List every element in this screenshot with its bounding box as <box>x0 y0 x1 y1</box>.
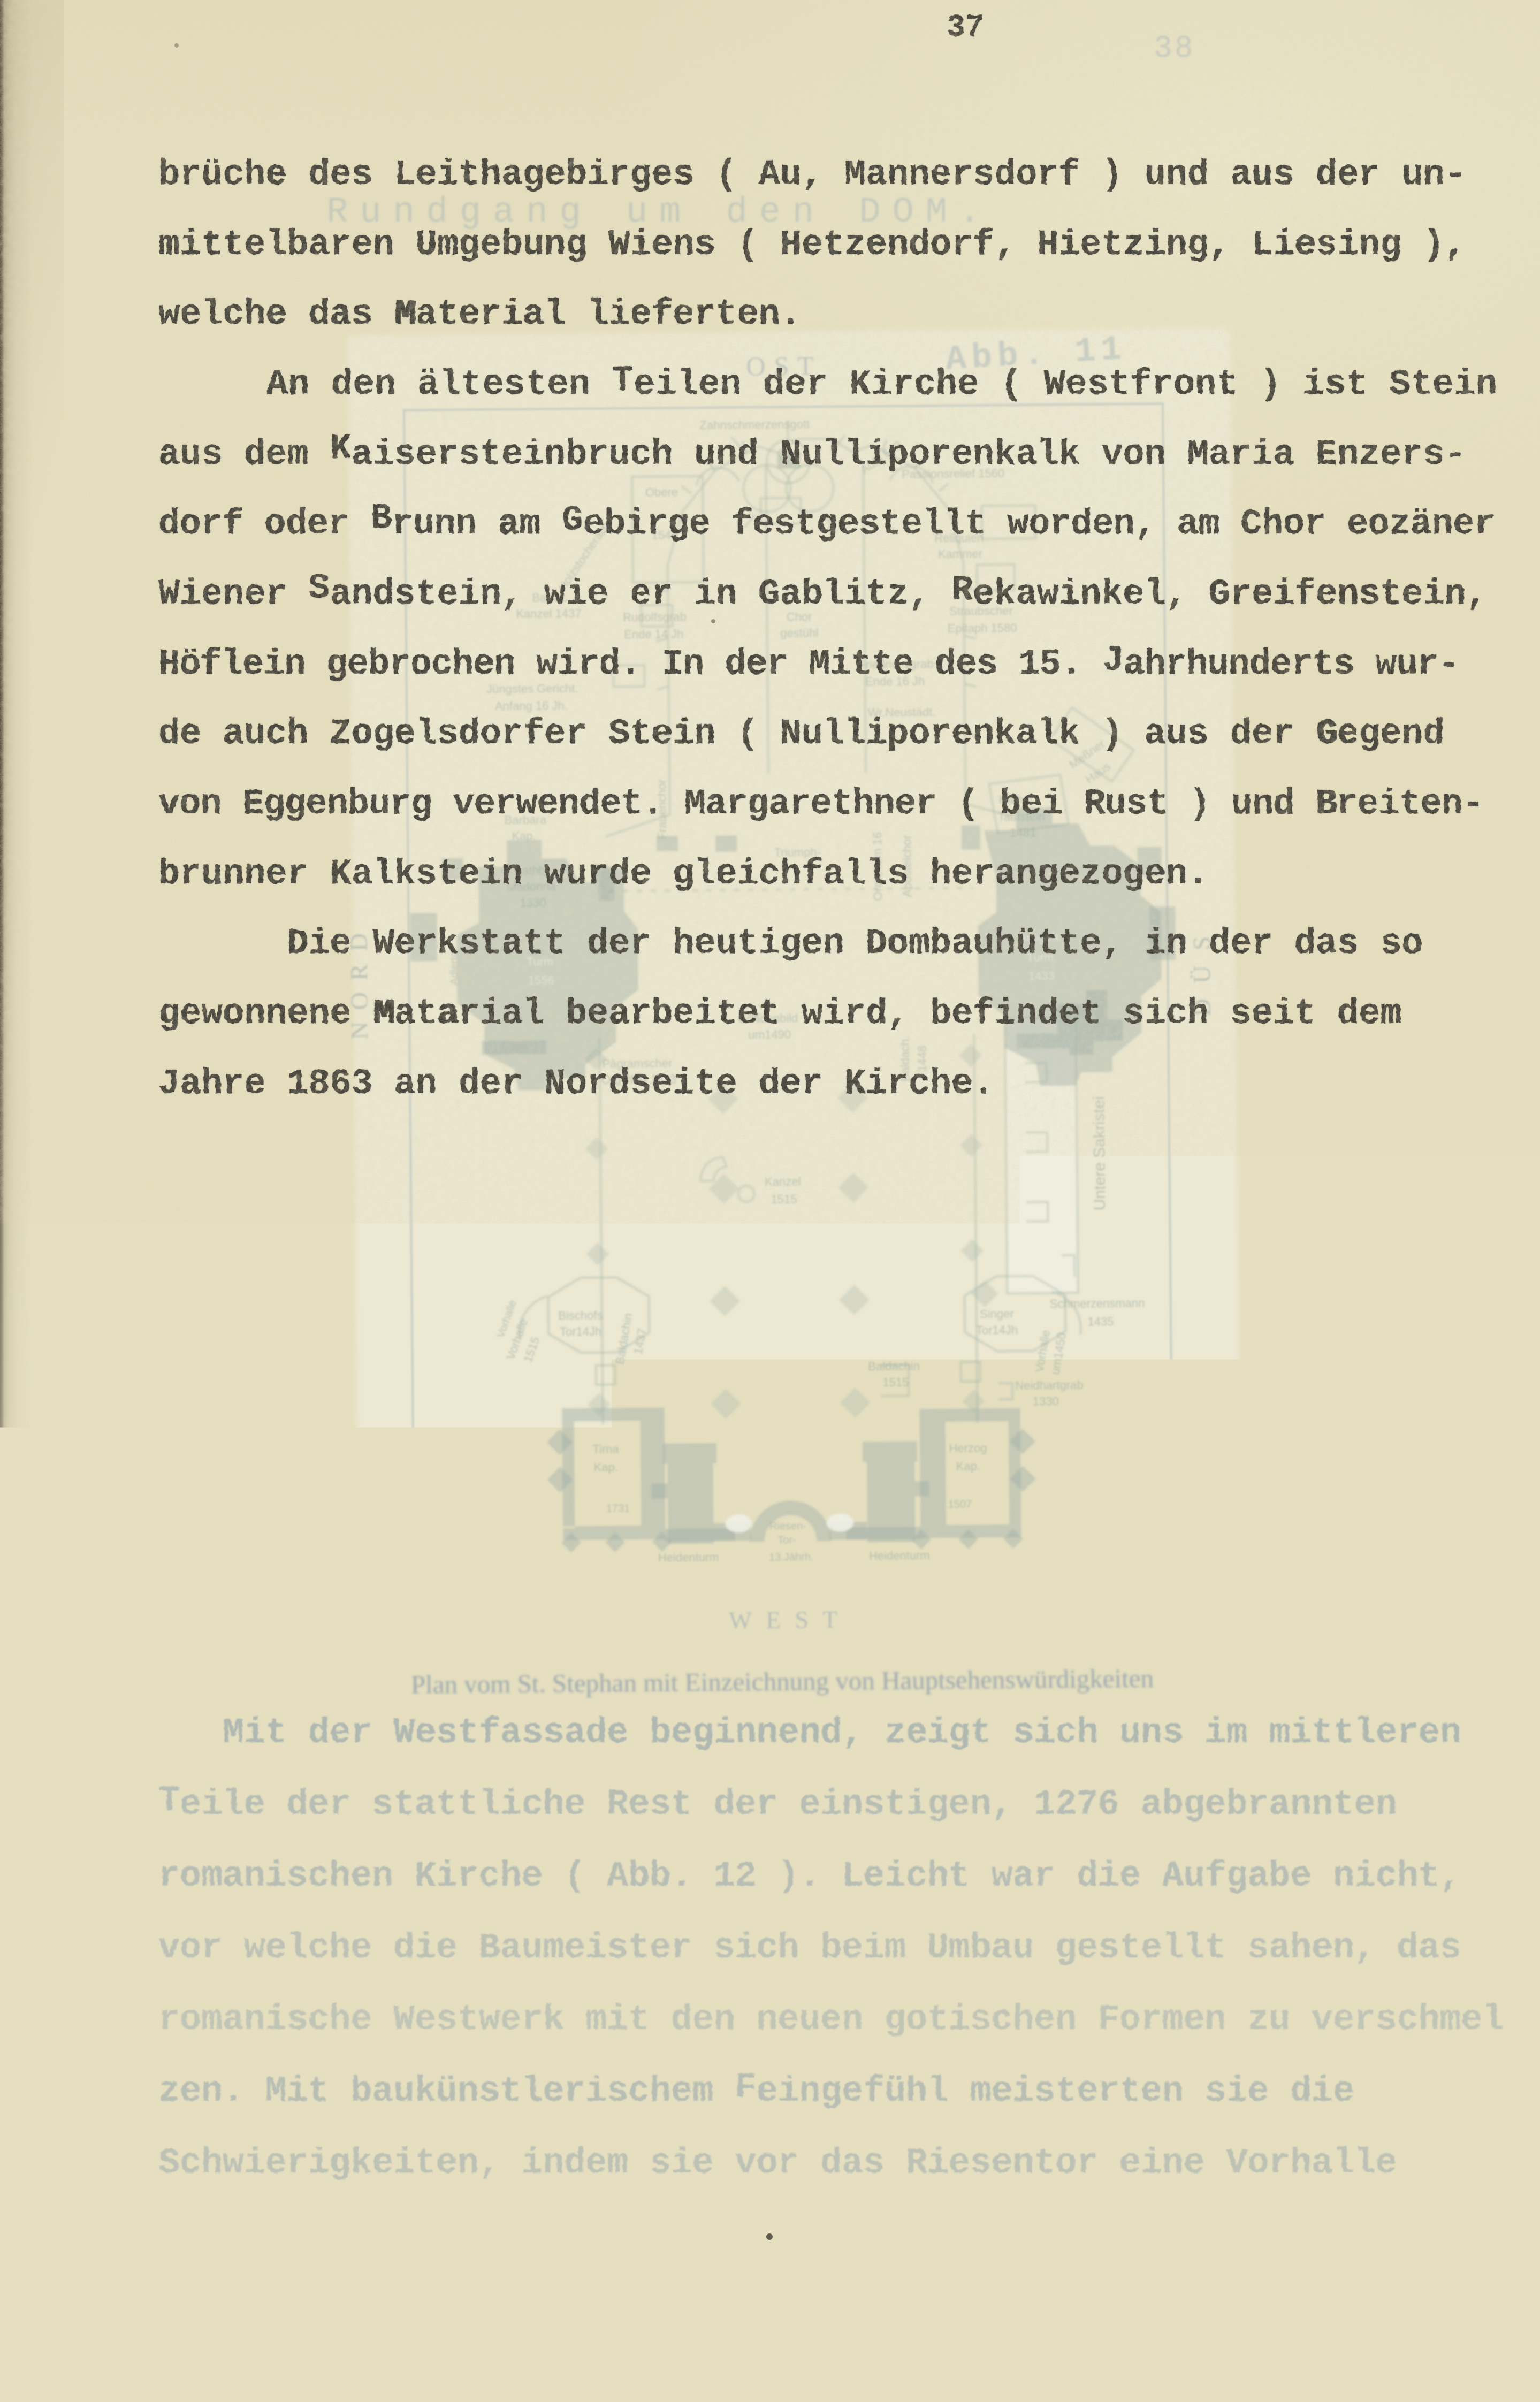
svg-text:Kammer: Kammer <box>938 547 982 561</box>
svg-text:Obere: Obere <box>645 485 678 499</box>
svg-text:Tor14Jh: Tor14Jh <box>560 1325 601 1339</box>
svg-text:1515: 1515 <box>882 1376 909 1389</box>
svg-text:Kap.: Kap. <box>956 1459 980 1473</box>
svg-text:Ü: Ü <box>1188 965 1215 983</box>
svg-text:Epitaph 1580: Epitaph 1580 <box>948 621 1017 635</box>
svg-text:Riesen-: Riesen- <box>769 1520 806 1532</box>
svg-text:WEST: WEST <box>729 1606 852 1634</box>
svg-text:Anfang 16 Jh.: Anfang 16 Jh. <box>495 699 568 713</box>
svg-text:1433: 1433 <box>1028 969 1055 982</box>
svg-text:Untere Sakristei: Untere Sakristei <box>1090 1096 1109 1211</box>
svg-text:Tor-: Tor- <box>777 1534 796 1546</box>
svg-text:Kap.: Kap. <box>594 1460 618 1474</box>
svg-text:Kap.: Kap. <box>512 829 536 843</box>
svg-text:1556: 1556 <box>528 973 554 987</box>
svg-text:Bischofs: Bischofs <box>558 1309 603 1323</box>
svg-text:Ende 14 Jh: Ende 14 Jh <box>624 627 684 641</box>
svg-text:Tor14Jh: Tor14Jh <box>976 1323 1018 1337</box>
svg-text:R: R <box>345 964 372 980</box>
svg-text:Tirna: Tirna <box>592 1442 619 1455</box>
svg-text:Heidenturm: Heidenturm <box>869 1549 930 1562</box>
svg-text:Herzog: Herzog <box>949 1441 987 1455</box>
svg-text:Neidhartgrab: Neidhartgrab <box>1015 1378 1083 1392</box>
svg-text:gestühl: gestühl <box>780 626 818 640</box>
svg-text:1330: 1330 <box>1033 1394 1059 1408</box>
svg-text:1435: 1435 <box>1087 1315 1114 1328</box>
svg-text:38: 38 <box>1154 32 1195 66</box>
svg-text:1515: 1515 <box>771 1192 797 1206</box>
svg-text:Zahnschmerzensgott: Zahnschmerzensgott <box>700 417 810 432</box>
svg-text:Singer: Singer <box>980 1307 1014 1321</box>
svg-text:13.Jährh.: 13.Jährh. <box>769 1551 814 1564</box>
svg-text:Heidenturm: Heidenturm <box>658 1551 719 1565</box>
svg-text:1507: 1507 <box>948 1499 972 1511</box>
svg-text:Schmerzensmann: Schmerzensmann <box>1050 1297 1145 1311</box>
svg-text:1330: 1330 <box>520 896 546 909</box>
svg-text:Kanzel: Kanzel <box>765 1175 801 1188</box>
svg-text:1731: 1731 <box>606 1503 630 1514</box>
svg-text:1481: 1481 <box>1010 826 1036 839</box>
svg-text:Baldachin: Baldachin <box>868 1359 920 1373</box>
